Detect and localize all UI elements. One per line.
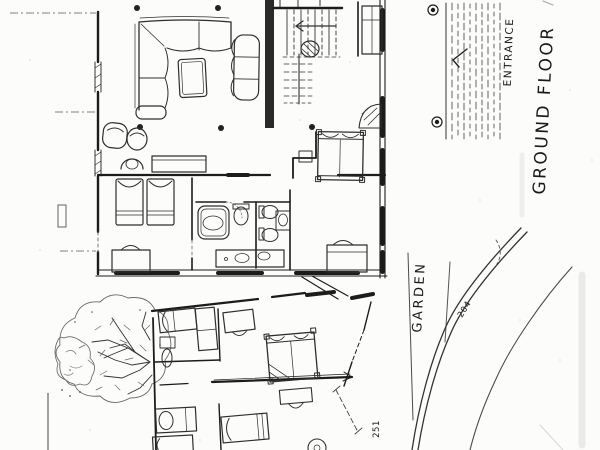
wardrobe (195, 307, 218, 350)
floor-plan-sketch: GROUND FLOOR ENTRANCE GARDEN 204 251 (0, 0, 600, 450)
single-bed (153, 435, 194, 450)
desk (152, 156, 206, 172)
path-dimension-label: 204 (456, 299, 474, 319)
dresser (223, 309, 256, 337)
single-bed (116, 179, 143, 225)
garden-edge-line-2 (445, 262, 450, 342)
bathrooms (198, 204, 290, 267)
circled-column (428, 5, 438, 15)
pedestal-sink (160, 337, 175, 367)
annotations: GROUND FLOOR ENTRANCE GARDEN 204 251 (372, 17, 558, 437)
structural-columns (134, 5, 315, 131)
single-bed (158, 308, 197, 333)
round-table (308, 439, 326, 450)
garden-outer-curve (470, 267, 572, 450)
garden-path-curve-outer (412, 228, 521, 450)
single-bed (155, 407, 196, 433)
vanity-counter (216, 250, 284, 267)
daybed (327, 241, 367, 273)
table-with-chair (279, 388, 313, 410)
toilet (233, 204, 249, 225)
circled-column (432, 117, 442, 127)
single-bed (221, 413, 269, 443)
interior-walls (98, 132, 385, 270)
annex-wing (152, 276, 373, 450)
single-bed (147, 179, 174, 225)
entrance-area (428, 3, 500, 139)
bathtub (198, 206, 229, 239)
column-dot (134, 5, 140, 11)
entrance-arrow (453, 49, 467, 67)
column-dot (309, 124, 315, 130)
bedroom-left (112, 179, 174, 272)
garden-label: GARDEN (410, 261, 429, 333)
corner-closet (359, 104, 381, 128)
small-sofa (231, 35, 260, 100)
column-dot (218, 125, 224, 131)
armchair (102, 122, 128, 149)
side-table (301, 41, 319, 57)
dresser (112, 246, 150, 273)
tree-branches (92, 312, 152, 394)
living-room (102, 17, 319, 173)
entrance-steps-hatch (452, 3, 500, 139)
chimney-wall (265, 0, 274, 128)
nightstand (299, 151, 312, 162)
toilet (259, 206, 278, 219)
dimension-line (333, 386, 362, 434)
garden-area (408, 228, 572, 450)
ground-floor-label: GROUND FLOOR (530, 25, 559, 195)
stool-chair (121, 159, 143, 169)
stair-direction-arrow (296, 21, 336, 31)
shrub-icon (55, 337, 95, 397)
wing-dimension-label: 251 (372, 420, 382, 438)
garden-path-curve-inner (418, 232, 527, 450)
column-dot (215, 5, 221, 11)
entrance-label: ENTRANCE (502, 17, 516, 86)
bidet (259, 228, 278, 242)
sectional-sofa (135, 17, 231, 120)
wardrobe-top-right (362, 6, 382, 54)
coffee-table (178, 58, 207, 97)
armchair (127, 128, 147, 150)
main-building (95, 0, 387, 278)
floor-plan-drawing: GROUND FLOOR ENTRANCE GARDEN 204 251 (0, 0, 600, 450)
staircase (283, 10, 340, 104)
